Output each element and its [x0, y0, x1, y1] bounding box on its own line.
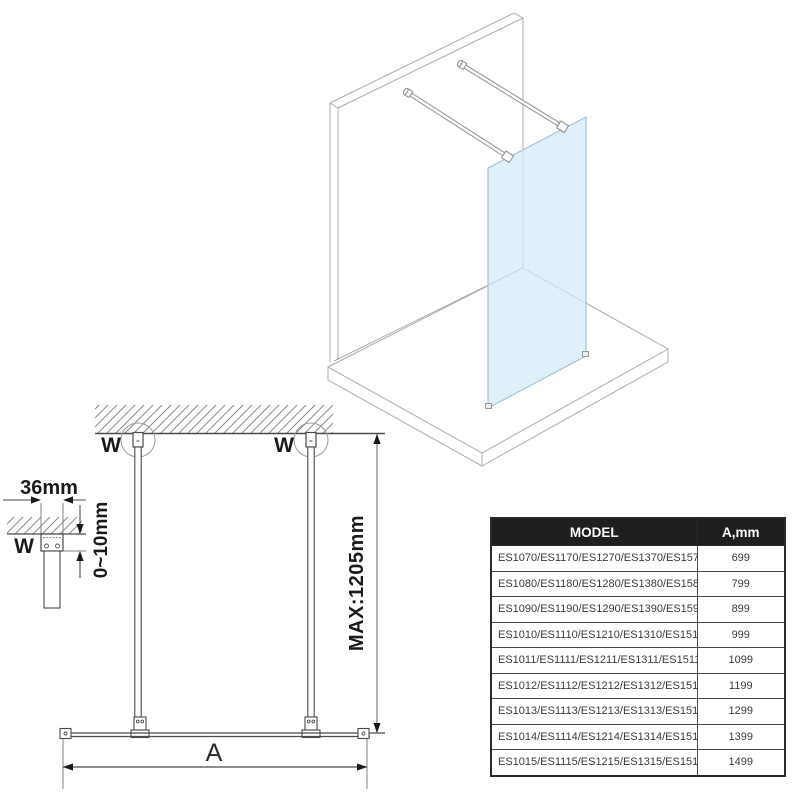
label-detail-wall-fixing: W [14, 535, 34, 558]
a-cell: 1099 [697, 648, 785, 674]
model-cell: ES1013/ES1113/ES1213/ES1313/ES1513 [491, 699, 697, 725]
a-cell: 799 [697, 571, 785, 597]
technical-drawing-page: W W MAX:1205mm A 36mm [0, 0, 800, 800]
table-row: ES1070/ES1170/ES1270/ES1370/ES1570 699 [491, 546, 785, 572]
dimension-adjustment-range: 0~10mm [76, 502, 112, 579]
model-cell: ES1090/ES1190/ES1290/ES1390/ES1590 [491, 597, 697, 623]
a-cell: 1299 [697, 699, 785, 725]
label-adjustment-range: 0~10mm [91, 502, 112, 579]
label-wall-fixing-left: W [101, 434, 121, 457]
model-spec-table: MODEL A,mm ES1070/ES1170/ES1270/ES1370/E… [490, 517, 786, 777]
model-cell: ES1011/ES1111/ES1211/ES1311/ES1511 [491, 648, 697, 674]
model-cell: ES1010/ES1110/ES1210/ES1310/ES1510 [491, 622, 697, 648]
header-model: MODEL [491, 518, 697, 546]
glass-panel-2d [60, 729, 385, 739]
wall-hatch [95, 405, 333, 433]
table-row: ES1010/ES1110/ES1210/ES1310/ES1510 999 [491, 622, 785, 648]
detail-wall-hatch [7, 517, 82, 534]
model-cell: ES1080/ES1180/ES1280/ES1380/ES1580 [491, 571, 697, 597]
dimension-glass-width: A [63, 739, 367, 789]
table-row: ES1013/ES1113/ES1213/ES1313/ES1513 1299 [491, 699, 785, 725]
table-row: ES1080/ES1180/ES1280/ES1380/ES1580 799 [491, 571, 785, 597]
detail-bar [44, 551, 60, 608]
dimension-max-length: MAX:1205mm [346, 434, 381, 733]
glass-foot-right [583, 352, 589, 357]
front-view: W W MAX:1205mm A [60, 405, 385, 789]
glass-panel-3d [486, 117, 589, 409]
a-cell: 699 [697, 546, 785, 572]
table-header-row: MODEL A,mm [491, 518, 785, 546]
a-cell: 999 [697, 622, 785, 648]
support-bar-3d-left [402, 87, 513, 162]
header-a-mm: A,mm [697, 518, 785, 546]
model-cell: ES1012/ES1112/ES1212/ES1312/ES1512 [491, 673, 697, 699]
a-cell: 1199 [697, 673, 785, 699]
a-cell: 899 [697, 597, 785, 623]
support-bar-3d-right [456, 59, 568, 132]
glass-foot-left [486, 404, 492, 409]
a-cell: 1499 [697, 750, 785, 776]
table-row: ES1014/ES1114/ES1214/ES1314/ES1514 1399 [491, 724, 785, 750]
a-cell: 1399 [697, 724, 785, 750]
model-cell: ES1014/ES1114/ES1214/ES1314/ES1514 [491, 724, 697, 750]
model-cell: ES1070/ES1170/ES1270/ES1370/ES1570 [491, 546, 697, 572]
mount-detail: 36mm W 0~10mm [3, 477, 112, 608]
table-row: ES1011/ES1111/ES1211/ES1311/ES1511 1099 [491, 648, 785, 674]
label-glass-width: A [206, 739, 223, 767]
label-bracket-width: 36mm [20, 477, 78, 499]
label-wall-fixing-right: W [274, 434, 294, 457]
table-row: ES1015/ES1115/ES1215/ES1315/ES1515 1499 [491, 750, 785, 776]
support-bar-2d-left [131, 433, 149, 738]
model-cell: ES1015/ES1115/ES1215/ES1315/ES1515 [491, 750, 697, 776]
table-row: ES1012/ES1112/ES1212/ES1312/ES1512 1199 [491, 673, 785, 699]
table-row: ES1090/ES1190/ES1290/ES1390/ES1590 899 [491, 597, 785, 623]
support-bar-2d-right [302, 433, 320, 738]
label-max-length: MAX:1205mm [346, 515, 368, 651]
detail-bracket [41, 534, 86, 551]
isometric-view [328, 13, 668, 466]
